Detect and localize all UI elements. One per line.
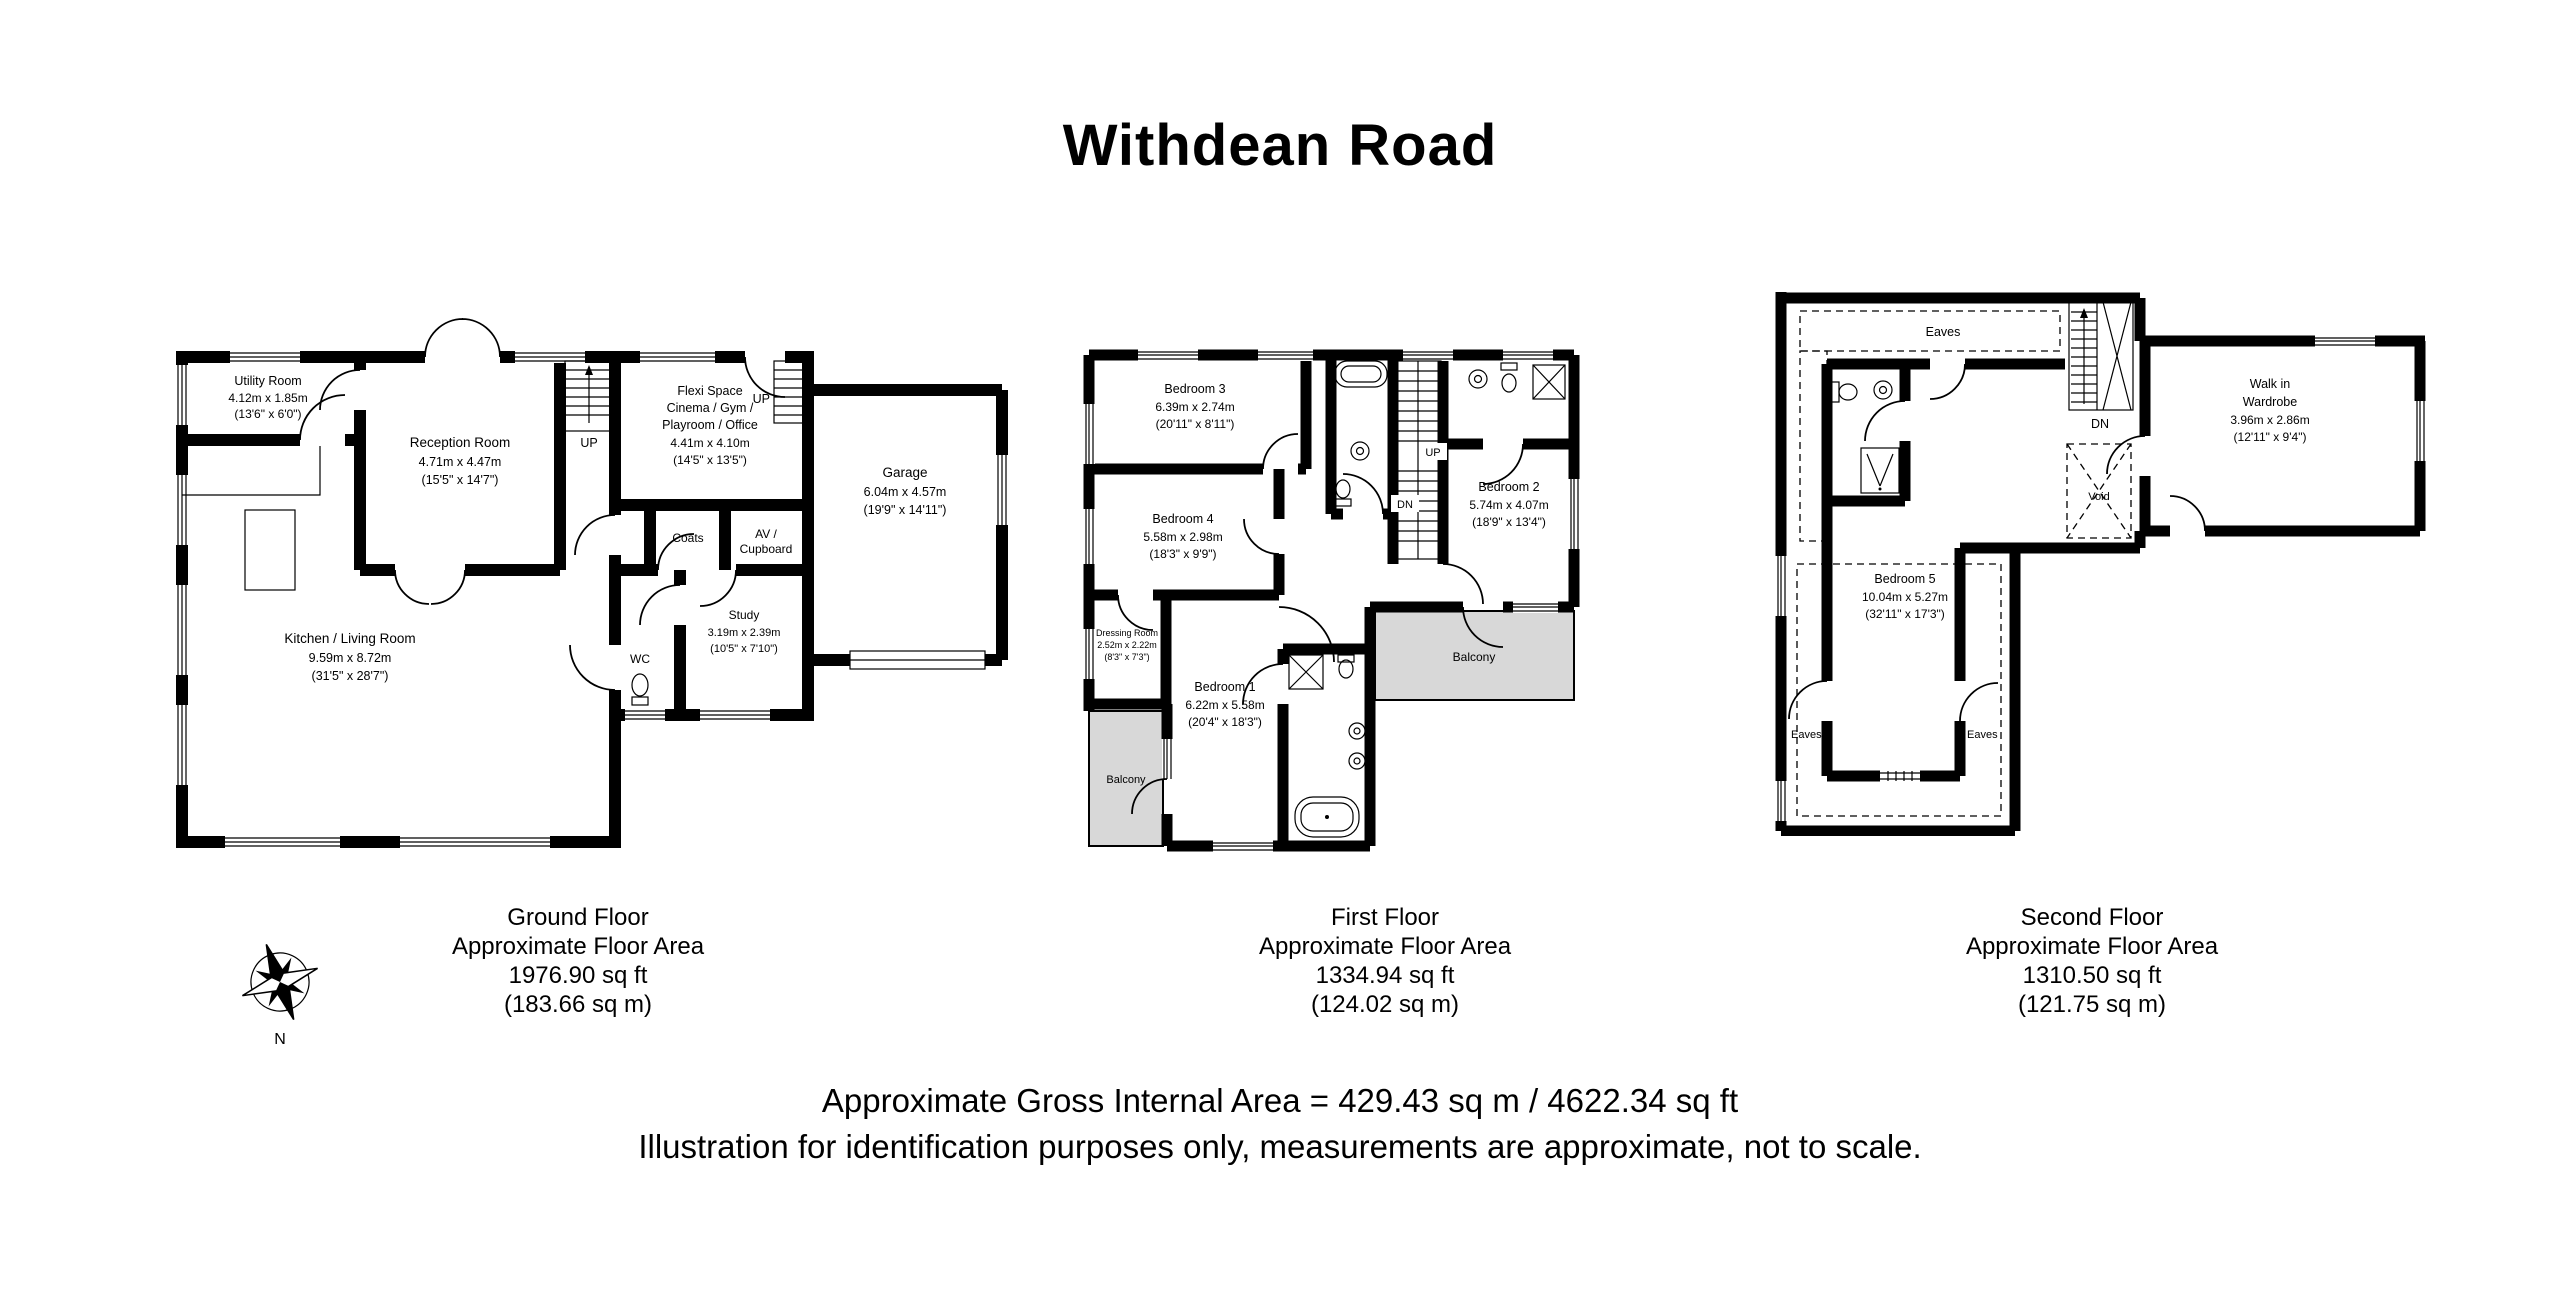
sink-icon — [1874, 381, 1892, 399]
room-label-wardrobe-2: Wardrobe — [2243, 395, 2297, 409]
walls — [1781, 292, 2425, 831]
room-labels: Utility Room 4.12m x 1.85m (13'6" x 6'0"… — [228, 374, 946, 683]
sink-icon — [1349, 753, 1365, 769]
stairs-up-flexi-label: UP — [753, 392, 770, 406]
room-dims-kitchen-m: 9.59m x 8.72m — [309, 651, 392, 665]
stairs-dn-label: DN — [2091, 417, 2109, 431]
room-label-bedroom2: Bedroom 2 — [1478, 480, 1539, 494]
toilet-icon — [1335, 480, 1351, 506]
first-floor-plan: UP DN Bedroom 3 6.39m x 2.74m (20'11" x … — [1083, 349, 1580, 852]
room-label-study: Study — [729, 608, 760, 622]
compass-north-label: N — [274, 1031, 286, 1048]
gross-internal-area: Approximate Gross Internal Area = 429.43… — [0, 1078, 2560, 1124]
kitchen-fixtures — [182, 446, 320, 590]
footer-disclaimer: Approximate Gross Internal Area = 429.43… — [0, 1078, 2560, 1170]
toilet-icon — [1831, 382, 1857, 402]
bathtub-icon — [1295, 797, 1359, 837]
second-floor-caption: Second Floor Approximate Floor Area 1310… — [1882, 903, 2302, 1019]
disclaimer-text: Illustration for identification purposes… — [0, 1124, 2560, 1170]
toilet-icon — [632, 674, 648, 705]
caption-line: 1334.94 sq ft — [1175, 961, 1595, 990]
caption-line: 1310.50 sq ft — [1882, 961, 2302, 990]
caption-line: Approximate Floor Area — [1882, 932, 2302, 961]
ensuite2-fixtures — [1469, 363, 1565, 399]
room-dims-bedroom1-m: 6.22m x 5.58m — [1185, 698, 1264, 712]
stairs — [2069, 302, 2133, 410]
caption-line: Second Floor — [1882, 903, 2302, 932]
caption-line: (121.75 sq m) — [1882, 990, 2302, 1019]
room-dims-bedroom1-ft: (20'4" x 18'3") — [1188, 715, 1262, 729]
room-dims-bedroom5-ft: (32'11" x 17'3") — [1865, 607, 1945, 621]
room-dims-wardrobe-ft: (12'11" x 9'4") — [2234, 430, 2307, 444]
void-label: Void — [2088, 491, 2109, 503]
room-label-flexi-3: Playroom / Office — [662, 418, 758, 432]
room-dims-flexi-ft: (14'5" x 13'5") — [673, 453, 747, 467]
room-dims-garage-ft: (19'9" x 14'11") — [864, 503, 947, 517]
room-label-reception: Reception Room — [410, 435, 511, 450]
room-label-wardrobe-1: Walk in — [2250, 377, 2291, 391]
room-label-garage: Garage — [882, 465, 927, 480]
caption-line: Approximate Floor Area — [368, 932, 788, 961]
room-label-wc: WC — [630, 652, 650, 666]
balcony-left-label: Balcony — [1106, 774, 1146, 786]
toilet-icon — [1501, 363, 1517, 392]
caption-line: Ground Floor — [368, 903, 788, 932]
room-dims-study-m: 3.19m x 2.39m — [708, 627, 781, 639]
stairs-flexi — [774, 361, 804, 423]
room-label-kitchen: Kitchen / Living Room — [284, 631, 415, 646]
ensuite1-fixtures — [1289, 655, 1365, 837]
room-label-bedroom4: Bedroom 4 — [1152, 512, 1213, 526]
room-label-dressing: Dressing Room — [1096, 628, 1158, 638]
stairs-dn-label: DN — [1397, 499, 1413, 511]
eaves-left-label: Eaves — [1791, 729, 1822, 741]
sink-icon — [1351, 442, 1369, 460]
shower-icon — [1533, 365, 1565, 399]
balcony-right-label: Balcony — [1453, 650, 1496, 664]
caption-line: Approximate Floor Area — [1175, 932, 1595, 961]
second-floor-plan: Bedroom 5 10.04m x 5.27m (32'11" x 17'3"… — [1775, 286, 2432, 836]
compass-rose-icon: N — [222, 930, 342, 1050]
page-title: Withdean Road — [0, 112, 2560, 179]
walls — [176, 351, 1002, 848]
caption-line: First Floor — [1175, 903, 1595, 932]
room-dims-bedroom4-m: 5.58m x 2.98m — [1143, 530, 1222, 544]
room-dims-bedroom4-ft: (18'3" x 9'9") — [1149, 547, 1216, 561]
room-label-bedroom5: Bedroom 5 — [1874, 572, 1935, 586]
stairs-up-label: UP — [1425, 447, 1440, 459]
sink-icon — [1469, 370, 1487, 388]
shower-icon — [1289, 655, 1323, 689]
eaves-outlines — [1797, 311, 2060, 816]
room-label-flexi-2: Cinema / Gym / — [667, 401, 754, 415]
room-label-utility: Utility Room — [234, 374, 301, 388]
room-dims-dressing-ft: (8'3" x 7'3") — [1104, 652, 1149, 662]
room-label-bedroom3: Bedroom 3 — [1164, 382, 1225, 396]
eaves-top-label: Eaves — [1926, 325, 1961, 339]
room-dims-reception-m: 4.71m x 4.47m — [419, 455, 502, 469]
eaves-right-label: Eaves — [1967, 729, 1998, 741]
room-dims-utility-m: 4.12m x 1.85m — [228, 391, 307, 405]
bathroom-fixtures — [1335, 361, 1387, 506]
stairs-up-label: UP — [580, 436, 597, 450]
room-dims-reception-ft: (15'5" x 14'7") — [422, 473, 499, 487]
room-label-bedroom1: Bedroom 1 — [1194, 680, 1255, 694]
room-dims-kitchen-ft: (31'5" x 28'7") — [312, 669, 389, 683]
room-dims-bedroom3-ft: (20'11" x 8'11") — [1156, 417, 1235, 431]
ground-floor-caption: Ground Floor Approximate Floor Area 1976… — [368, 903, 788, 1019]
floorplan-page: Withdean Road — [0, 0, 2560, 1303]
room-dims-bedroom2-m: 5.74m x 4.07m — [1469, 498, 1548, 512]
toilet-icon — [1338, 655, 1354, 678]
caption-line: (124.02 sq m) — [1175, 990, 1595, 1019]
room-label-coats: Coats — [672, 531, 703, 545]
stairs-main — [565, 361, 613, 431]
windows — [176, 351, 1008, 848]
shower-icon — [1861, 448, 1899, 493]
room-dims-bedroom5-m: 10.04m x 5.27m — [1862, 590, 1948, 604]
room-dims-dressing-m: 2.52m x 2.22m — [1097, 640, 1157, 650]
sink-icon — [1349, 723, 1365, 739]
ground-floor-plan: Utility Room 4.12m x 1.85m (13'6" x 6'0"… — [170, 295, 1010, 860]
room-dims-bedroom2-ft: (18'9" x 13'4") — [1472, 515, 1546, 529]
caption-line: 1976.90 sq ft — [368, 961, 788, 990]
room-dims-bedroom3-m: 6.39m x 2.74m — [1155, 400, 1234, 414]
room-dims-utility-ft: (13'6" x 6'0") — [234, 407, 301, 421]
room-dims-garage-m: 6.04m x 4.57m — [864, 485, 947, 499]
kitchen-island — [245, 510, 295, 590]
room-dims-wardrobe-m: 3.96m x 2.86m — [2230, 413, 2309, 427]
room-label-av-2: Cupboard — [740, 542, 793, 556]
room-dims-flexi-m: 4.41m x 4.10m — [670, 436, 749, 450]
bathtub-icon — [1335, 361, 1387, 387]
caption-line: (183.66 sq m) — [368, 990, 788, 1019]
room-dims-study-ft: (10'5" x 7'10") — [710, 643, 778, 655]
room-label-flexi-1: Flexi Space — [677, 384, 742, 398]
first-floor-caption: First Floor Approximate Floor Area 1334.… — [1175, 903, 1595, 1019]
room-label-av-1: AV / — [755, 527, 777, 541]
